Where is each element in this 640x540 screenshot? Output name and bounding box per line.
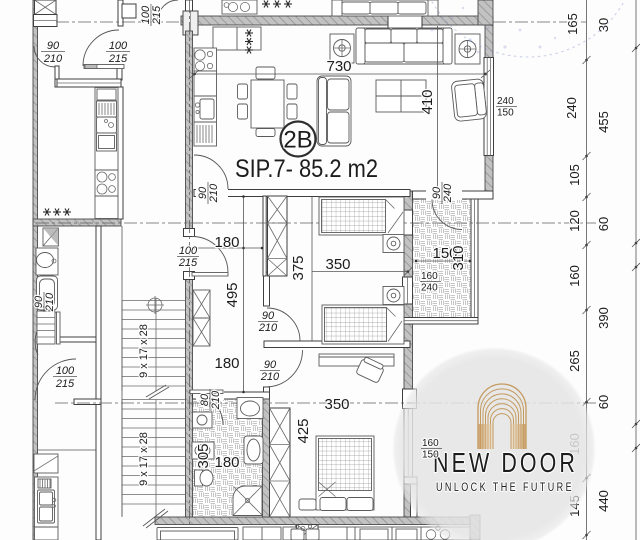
svg-text:410: 410 xyxy=(419,89,436,114)
svg-text:215: 215 xyxy=(108,53,128,65)
svg-text:350: 350 xyxy=(325,256,350,273)
svg-text:455: 455 xyxy=(596,111,611,133)
svg-text:160: 160 xyxy=(421,271,438,282)
svg-text:305: 305 xyxy=(195,443,212,468)
svg-text:160: 160 xyxy=(422,438,439,449)
svg-text:425: 425 xyxy=(295,418,312,443)
svg-text:60: 60 xyxy=(596,217,611,231)
svg-text:210: 210 xyxy=(210,390,222,410)
svg-text:150: 150 xyxy=(422,450,439,461)
svg-text:350: 350 xyxy=(324,396,349,413)
svg-text:215: 215 xyxy=(55,378,75,390)
svg-text:9 x 17 x 28: 9 x 17 x 28 xyxy=(138,432,150,486)
svg-text:240: 240 xyxy=(421,283,438,294)
svg-text:60: 60 xyxy=(596,395,611,409)
svg-text:100: 100 xyxy=(109,40,128,52)
svg-text:210: 210 xyxy=(258,322,278,334)
svg-text:180: 180 xyxy=(214,454,239,471)
svg-text:310: 310 xyxy=(450,245,467,270)
svg-text:210: 210 xyxy=(43,53,63,65)
svg-text:165: 165 xyxy=(565,13,580,35)
svg-text:160: 160 xyxy=(567,265,582,287)
svg-text:210: 210 xyxy=(208,183,220,203)
svg-text:210: 210 xyxy=(260,371,280,383)
svg-text:90: 90 xyxy=(47,40,60,52)
svg-text:180: 180 xyxy=(214,355,239,372)
svg-text:390: 390 xyxy=(596,307,611,329)
svg-text:9 x 17 x 28: 9 x 17 x 28 xyxy=(138,324,150,378)
svg-text:30: 30 xyxy=(596,18,611,32)
svg-text:730: 730 xyxy=(326,58,351,75)
svg-text:120: 120 xyxy=(567,210,582,232)
svg-text:210: 210 xyxy=(44,292,56,312)
svg-text:495: 495 xyxy=(224,282,241,307)
svg-text:215: 215 xyxy=(151,5,163,25)
svg-text:90: 90 xyxy=(264,359,277,371)
svg-text:100: 100 xyxy=(179,245,198,257)
svg-text:UNLOCK THE FUTURE: UNLOCK THE FUTURE xyxy=(436,482,574,494)
svg-text:2B: 2B xyxy=(283,127,312,154)
svg-text:100: 100 xyxy=(56,365,75,377)
svg-text:215: 215 xyxy=(178,257,198,269)
svg-text:240: 240 xyxy=(497,96,514,107)
svg-text:90: 90 xyxy=(262,310,275,322)
svg-text:105: 105 xyxy=(567,164,582,186)
svg-text:NEW DOOR: NEW DOOR xyxy=(433,447,578,478)
svg-text:440: 440 xyxy=(596,490,611,512)
svg-text:240: 240 xyxy=(442,183,454,203)
svg-text:240: 240 xyxy=(564,97,579,119)
svg-text:150: 150 xyxy=(497,108,514,119)
svg-text:180: 180 xyxy=(214,234,239,251)
svg-text:265: 265 xyxy=(567,350,582,372)
svg-text:375: 375 xyxy=(290,255,307,280)
svg-text:SIP.7- 85.2 m2: SIP.7- 85.2 m2 xyxy=(235,155,378,183)
